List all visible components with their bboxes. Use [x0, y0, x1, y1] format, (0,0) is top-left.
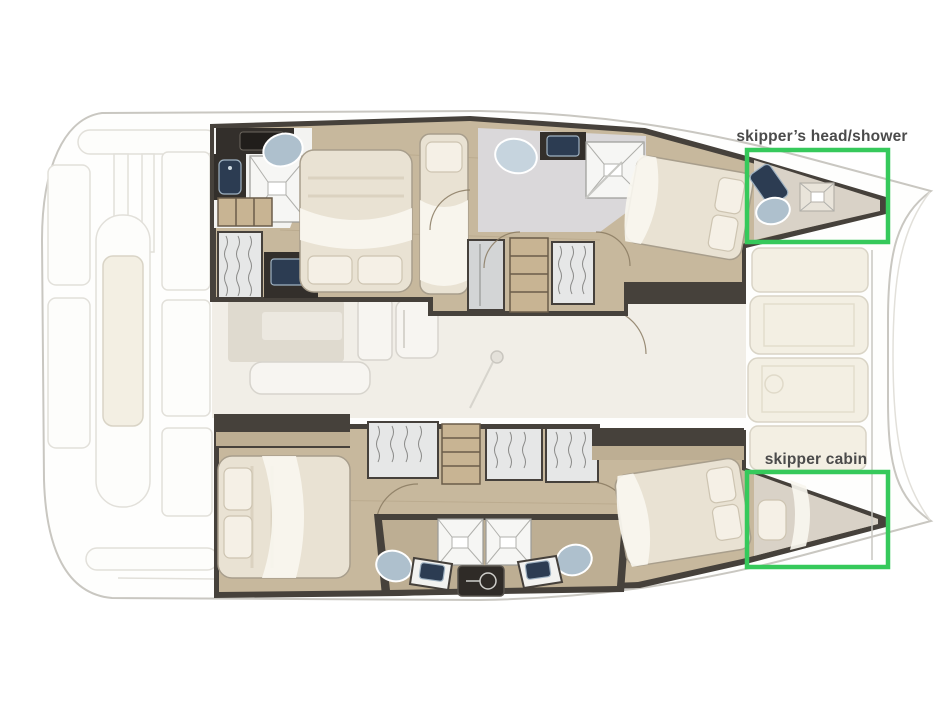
- compression-post: [491, 351, 503, 363]
- wardrobe-icon: [368, 422, 438, 478]
- stairs-icon: [442, 424, 480, 484]
- bow-sheer-line: [893, 192, 930, 520]
- companionway-steps-port: [510, 238, 548, 312]
- port-berth: [420, 134, 468, 294]
- pillow: [426, 142, 462, 172]
- pillow: [358, 256, 402, 284]
- sink-icon: [419, 562, 445, 581]
- seat-slats: [218, 198, 272, 226]
- shower-icon: [486, 519, 531, 565]
- systems-console: [458, 566, 504, 596]
- cockpit-bench: [162, 428, 212, 516]
- skipper-head-label: skipper’s head/shower: [736, 128, 907, 145]
- shelf-top: [592, 446, 744, 460]
- floorplan-page: skipper’s head/shower skipper cabin: [0, 0, 947, 710]
- cockpit-roof-beam: [78, 130, 218, 154]
- companionway-steps-starboard: [442, 424, 480, 484]
- starboard-aft-cabin: [216, 414, 350, 578]
- floorplan-graphic: skipper’s head/shower skipper cabin: [0, 0, 947, 710]
- skipper-cabin-label: skipper cabin: [765, 451, 868, 468]
- deck-hatch-icon: [800, 183, 834, 211]
- faucet-icon: [228, 166, 232, 170]
- sink-icon: [219, 160, 241, 194]
- pillow: [758, 500, 786, 540]
- shelf-top: [216, 432, 350, 446]
- pillow: [224, 468, 252, 510]
- wardrobe-icon: [486, 428, 542, 480]
- duvet-fold: [420, 200, 468, 286]
- cockpit-bench: [162, 300, 210, 416]
- cockpit-locker: [48, 165, 90, 285]
- port-cabin: [300, 150, 412, 292]
- sink-icon: [525, 560, 551, 579]
- salon-table-top: [262, 312, 342, 340]
- foredeck-sunpad: [752, 248, 868, 292]
- salon-sofa: [250, 362, 370, 394]
- pillow: [714, 177, 746, 215]
- cockpit-locker: [48, 298, 90, 448]
- starboard-heads: [372, 514, 630, 596]
- cockpit-roof-beam: [86, 548, 218, 570]
- wardrobe-icon: [218, 232, 262, 298]
- shower-icon: [438, 519, 483, 565]
- pillow: [706, 466, 737, 504]
- linen-closet: [468, 240, 504, 310]
- pillow: [224, 516, 252, 558]
- wardrobe-icon: [552, 242, 594, 304]
- pillow: [308, 256, 352, 284]
- pillow: [712, 504, 743, 542]
- cockpit-bench: [162, 152, 210, 290]
- dinghy-pad: [103, 256, 143, 426]
- stairs-icon: [510, 238, 548, 312]
- pillow: [707, 214, 739, 252]
- galley-cabinet: [358, 298, 392, 360]
- headboard-shelf: [592, 428, 744, 446]
- sink-icon: [547, 136, 579, 156]
- wardrobe-icon: [546, 428, 598, 482]
